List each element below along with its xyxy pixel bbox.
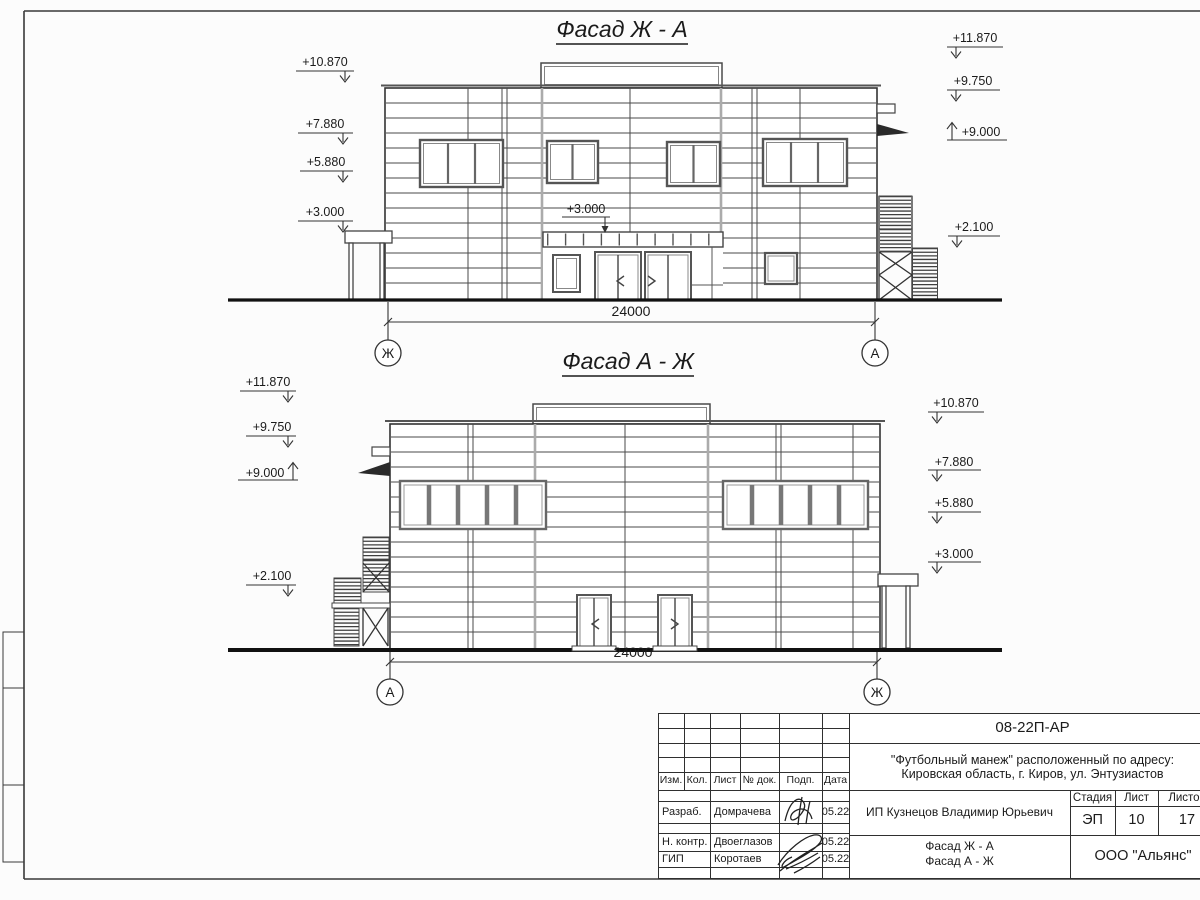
elevation-marks-left: +10.870 +7.880 +5.880 +3.000 <box>296 55 354 232</box>
col-header-ndok: № док. <box>740 772 779 790</box>
elevation-mark: +3.000 <box>306 205 345 219</box>
dimension-value: 24000 <box>612 303 651 319</box>
door-sill <box>653 646 697 651</box>
entrance <box>543 232 723 300</box>
col-header-data: Дата <box>822 772 849 790</box>
right-porch <box>878 574 918 648</box>
col-header-list: Лист <box>710 772 740 790</box>
doc-number: 08-22П-АР <box>849 713 1200 743</box>
drawing-sheet: Фасад Ж - А <box>0 0 1200 900</box>
canopy-wedge <box>877 124 909 136</box>
elevation-mark: +2.100 <box>955 220 994 234</box>
window-band-right <box>723 481 868 529</box>
client-name: ИП Кузнецов Владимир Юрьевич <box>849 790 1070 835</box>
window-band-left <box>400 481 546 529</box>
dimension-value: 24000 <box>614 644 653 660</box>
axis-markers: А Ж <box>377 679 890 705</box>
drawing-title-line2: Фасад А - Ж <box>849 854 1070 870</box>
entrance-canopy <box>543 232 723 247</box>
elevation-mark: +5.880 <box>935 496 974 510</box>
col-header-izm: Изм. <box>658 772 684 790</box>
name-razrab: Домрачева <box>710 801 783 823</box>
facade-bottom-title: Фасад А - Ж <box>562 348 695 374</box>
roof-tab <box>877 104 895 113</box>
roof-tab <box>372 447 390 456</box>
role-nkontr: Н. контр. <box>658 833 714 851</box>
col-header-kol: Кол. <box>684 772 710 790</box>
project-address-line2: Кировская область, г. Киров, ул. Энтузиа… <box>849 767 1200 782</box>
elevation-mark: +3.000 <box>935 547 974 561</box>
elevation-mark: +11.870 <box>953 31 998 45</box>
elevation-mark: +7.880 <box>306 117 345 131</box>
elevation-mark: +2.100 <box>253 569 292 583</box>
signature-razrab <box>780 793 824 829</box>
sheets-label: Листов <box>1158 790 1200 806</box>
stage-value: ЭП <box>1070 806 1115 835</box>
elevation-mark: +5.880 <box>307 155 346 169</box>
project-address-line1: "Футбольный манеж" расположенный по адре… <box>849 753 1200 768</box>
small-window <box>765 253 797 284</box>
door-left <box>577 595 611 649</box>
title-block: Изм. Кол. Лист № док. Подп. Дата Разраб.… <box>658 713 1200 879</box>
company-name: ООО "Альянс" <box>1070 835 1200 878</box>
elevation-mark: +3.000 <box>567 202 606 216</box>
building-outline <box>390 424 880 650</box>
sheet-label: Лист <box>1115 790 1158 806</box>
elevation-marks-left: +11.870 +9.750 +9.000 +2.100 <box>238 375 298 596</box>
elevation-mark: +9.000 <box>962 125 1001 139</box>
elevation-mark: +10.870 <box>302 55 348 69</box>
canopy-wedge <box>358 462 390 476</box>
fire-escape-stairs <box>332 537 390 646</box>
facade-top-drawing: Фасад Ж - А <box>228 16 1007 366</box>
role-razrab: Разраб. <box>658 801 714 823</box>
axis-label: Ж <box>382 346 395 361</box>
elevation-mark: +7.880 <box>935 455 974 469</box>
elevation-mark: +9.750 <box>954 74 993 88</box>
sheets-total: 17 <box>1158 806 1200 835</box>
role-gip: ГИП <box>658 851 714 867</box>
axis-label: А <box>385 685 394 700</box>
name-gip: Коротаев <box>710 851 783 867</box>
entrance-door-left <box>595 252 641 300</box>
drawing-title-line1: Фасад Ж - А <box>849 839 1070 855</box>
sheet-number: 10 <box>1115 806 1158 835</box>
elevation-mark: +9.000 <box>246 466 285 480</box>
frame-margin-boxes <box>3 632 24 862</box>
signature-gip <box>774 829 826 875</box>
elevation-mark: +11.870 <box>246 375 291 389</box>
elevation-mark: +10.870 <box>933 396 979 410</box>
door-right <box>658 595 692 649</box>
date-nkontr: 05.22 <box>822 833 849 851</box>
elevation-marks-right: +11.870 +9.750 +9.000 +2.100 <box>947 31 1007 247</box>
facade-bottom-drawing: Фасад А - Ж <box>228 348 1002 705</box>
axis-label: А <box>870 346 879 361</box>
axis-label: Ж <box>871 685 884 700</box>
entrance-door-right <box>645 252 691 300</box>
fire-escape-stairs <box>879 196 938 300</box>
date-razrab: 05.22 <box>822 801 849 823</box>
col-header-podp: Подп. <box>779 772 822 790</box>
elevation-marks-right: +10.870 +7.880 +5.880 +3.000 <box>928 396 984 573</box>
stage-label: Стадия <box>1070 790 1115 806</box>
name-nkontr: Двоеглазов <box>710 833 783 851</box>
door-sill <box>572 646 616 651</box>
elevation-mark: +9.750 <box>253 420 292 434</box>
facade-top-title: Фасад Ж - А <box>556 16 687 42</box>
date-gip: 05.22 <box>822 851 849 867</box>
dimension-line: 24000 <box>384 302 879 340</box>
